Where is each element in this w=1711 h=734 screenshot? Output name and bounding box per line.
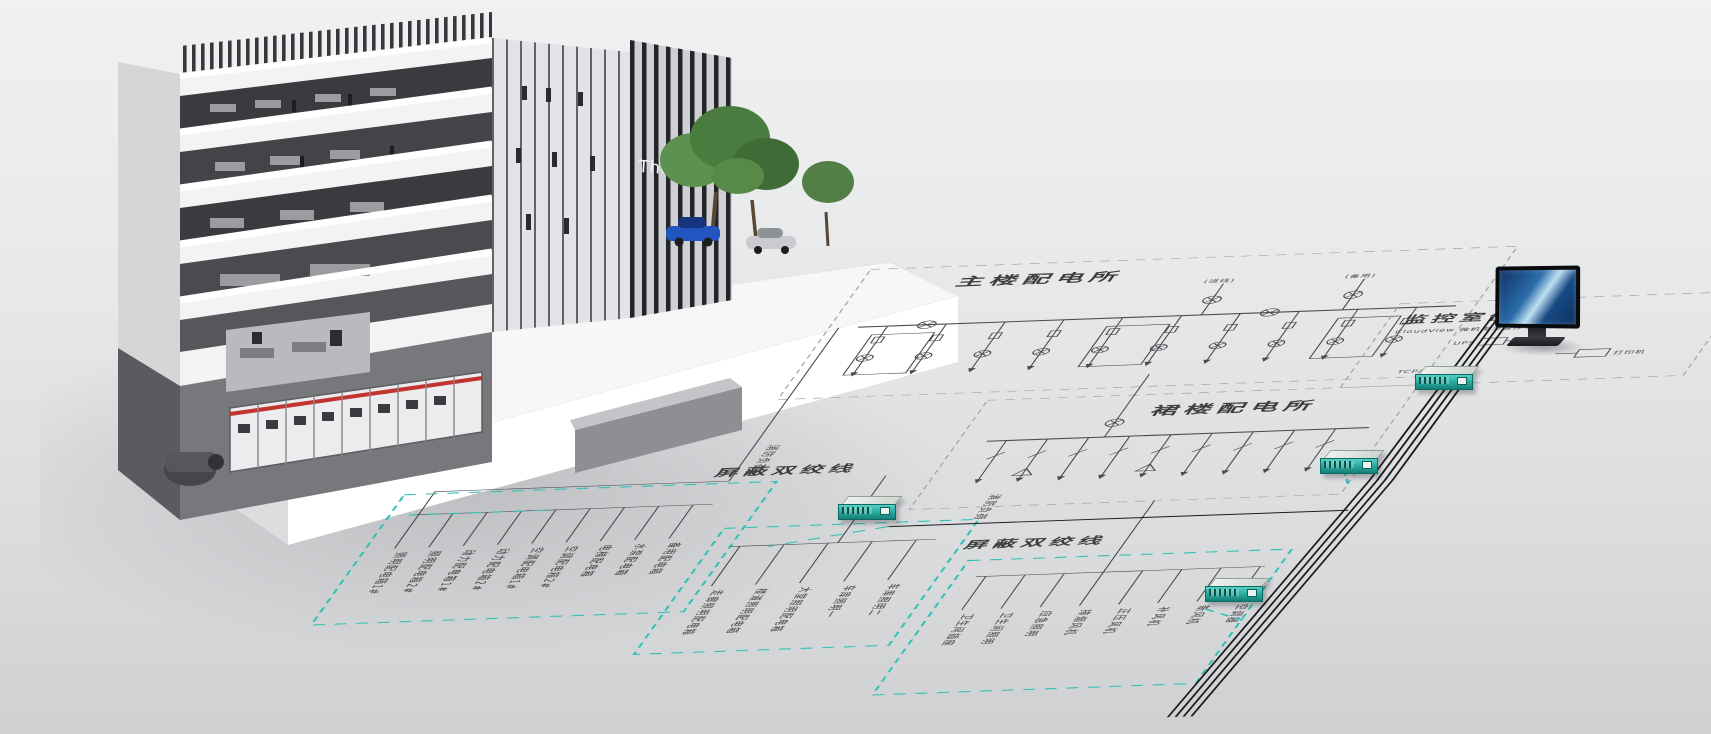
load-label: 应急照明: [1021, 611, 1056, 638]
load-label: 排烟风机: [1060, 609, 1095, 636]
device-slots: [1419, 377, 1449, 384]
gateway-device-4: [1205, 578, 1263, 604]
device-led: [1247, 589, 1257, 597]
main-substation-title: 主楼配电所: [952, 270, 1128, 289]
load-label: 走廊照明配电箱: [678, 590, 727, 636]
scene: The Building: [0, 0, 1711, 734]
monitor: [1494, 266, 1586, 358]
load-label: 新风机: [1182, 605, 1212, 625]
device-led: [1457, 377, 1467, 385]
load-label: 正压风机: [1099, 608, 1134, 635]
device-led: [880, 507, 890, 515]
podium-substation-title: 裙楼配电所: [1147, 398, 1324, 418]
device-slots: [842, 507, 872, 514]
device-slots: [1324, 461, 1354, 468]
monitor-screen: [1495, 266, 1580, 329]
load-group-b: 走廊照明配电箱 楼道照明配电箱 大堂照明配电箱 车库照明一 车库照明二: [634, 519, 979, 654]
load-label: 大堂照明配电箱: [766, 587, 815, 633]
device-led: [1362, 461, 1372, 469]
load-label: 车库照明一: [820, 585, 859, 618]
load-label: 卫生间插座: [938, 613, 977, 646]
comm-cables: [241, 316, 1513, 734]
gateway-device-1: [1415, 366, 1473, 392]
load-label: 空调器: [1221, 604, 1251, 624]
gateway-device-2: [1320, 450, 1378, 476]
load-label: 车库照明二: [864, 583, 903, 616]
shielded-pair-label-1: 屏蔽双绞线: [711, 462, 862, 479]
shielded-pair-label-2: 屏蔽双绞线: [961, 534, 1112, 551]
load-label: 卫生间照明: [977, 612, 1016, 645]
load-label: 备用配电箱: [645, 542, 684, 575]
gateway-device-3: [838, 496, 896, 522]
load-label: 电梯配电箱: [576, 545, 615, 578]
printer-label: 打印机: [1612, 349, 1648, 356]
fire-load-label-2: 消防负荷: [970, 494, 1005, 521]
load-label: 补风机: [1143, 606, 1173, 626]
device-slots: [1209, 589, 1239, 596]
incoming-label-1: (进线): [1202, 278, 1237, 284]
load-label: 楼道照明配电箱: [722, 588, 771, 634]
monitor-base: [1506, 337, 1566, 346]
incoming-label-2: (备用): [1343, 272, 1378, 278]
load-label: 水泵配电箱: [611, 543, 650, 576]
